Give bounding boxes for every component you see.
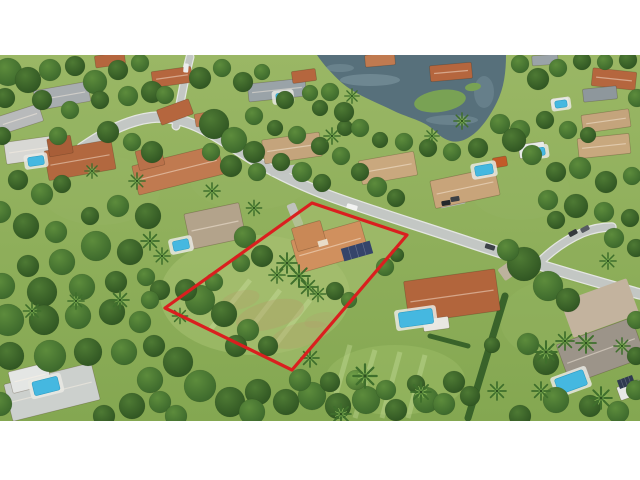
palm-tree [85,164,99,178]
car [183,63,189,72]
palm-tree [154,248,170,264]
palm-tree [246,200,261,215]
palm-tree [111,291,129,309]
palm-tree [535,341,557,363]
palm-tree [600,253,616,269]
palm-tree [129,173,145,189]
palm-tree [23,302,40,319]
palm-tree [576,333,596,353]
palm-tree [68,293,84,309]
palm-tree [204,183,220,199]
palm-tree [532,382,550,400]
letterbox-top [0,0,640,55]
screenshot-root [0,0,640,480]
aerial-photo-canvas [0,55,640,421]
palm-tree [454,113,470,129]
palm-tree [353,364,376,387]
palm-tree [590,387,612,409]
palm-tree [488,382,506,400]
palm-tree [269,267,285,283]
house-roof [429,62,472,82]
palm-tree [411,382,431,402]
palm-tree [310,286,325,301]
palm-tree [141,232,159,250]
aerial-photo [0,55,640,421]
palm-tree [324,128,340,144]
palm-tree [614,338,630,354]
palm-tree [556,332,574,350]
letterbox-bottom [0,421,640,480]
palm-tree [425,129,439,143]
palm-tree [345,89,359,103]
swimming-pool [550,96,572,112]
